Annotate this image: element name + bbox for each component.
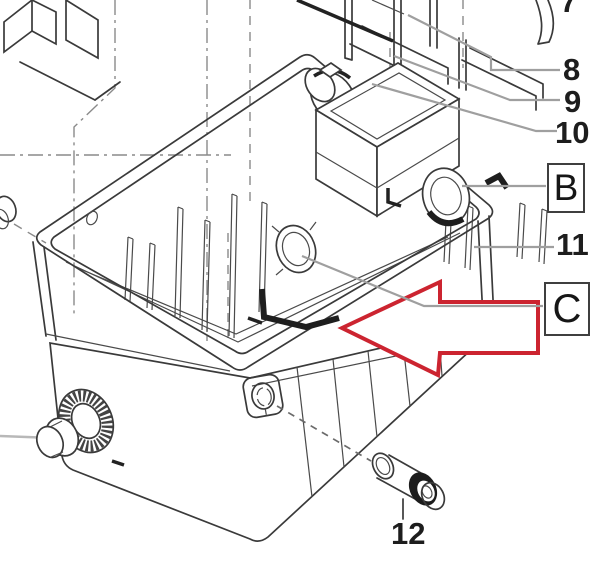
edge-clip bbox=[0, 194, 46, 243]
callout-c-letter: C bbox=[553, 287, 582, 332]
drain-fitting bbox=[0, 381, 123, 462]
callout-box-b: B bbox=[547, 163, 585, 213]
hose-fitting-12 bbox=[368, 450, 449, 519]
parts-diagram: 7 8 9 10 11 12 B C bbox=[0, 0, 600, 564]
callout-b-letter: B bbox=[554, 167, 579, 209]
callout-11: 11 bbox=[556, 229, 589, 260]
callout-12: 12 bbox=[391, 518, 425, 549]
callout-8: 8 bbox=[563, 54, 580, 85]
callout-box-c: C bbox=[544, 282, 590, 336]
rim-hole bbox=[85, 210, 100, 227]
callout-9: 9 bbox=[564, 86, 581, 117]
callout-10: 10 bbox=[555, 117, 589, 148]
callout-7: 7 bbox=[560, 0, 577, 17]
fitting-axis-dashes bbox=[277, 406, 371, 461]
diagram-linework bbox=[0, 0, 600, 564]
outlet-port bbox=[242, 373, 284, 419]
clamp-ring-c bbox=[270, 220, 322, 278]
lid-fins bbox=[4, 0, 120, 100]
